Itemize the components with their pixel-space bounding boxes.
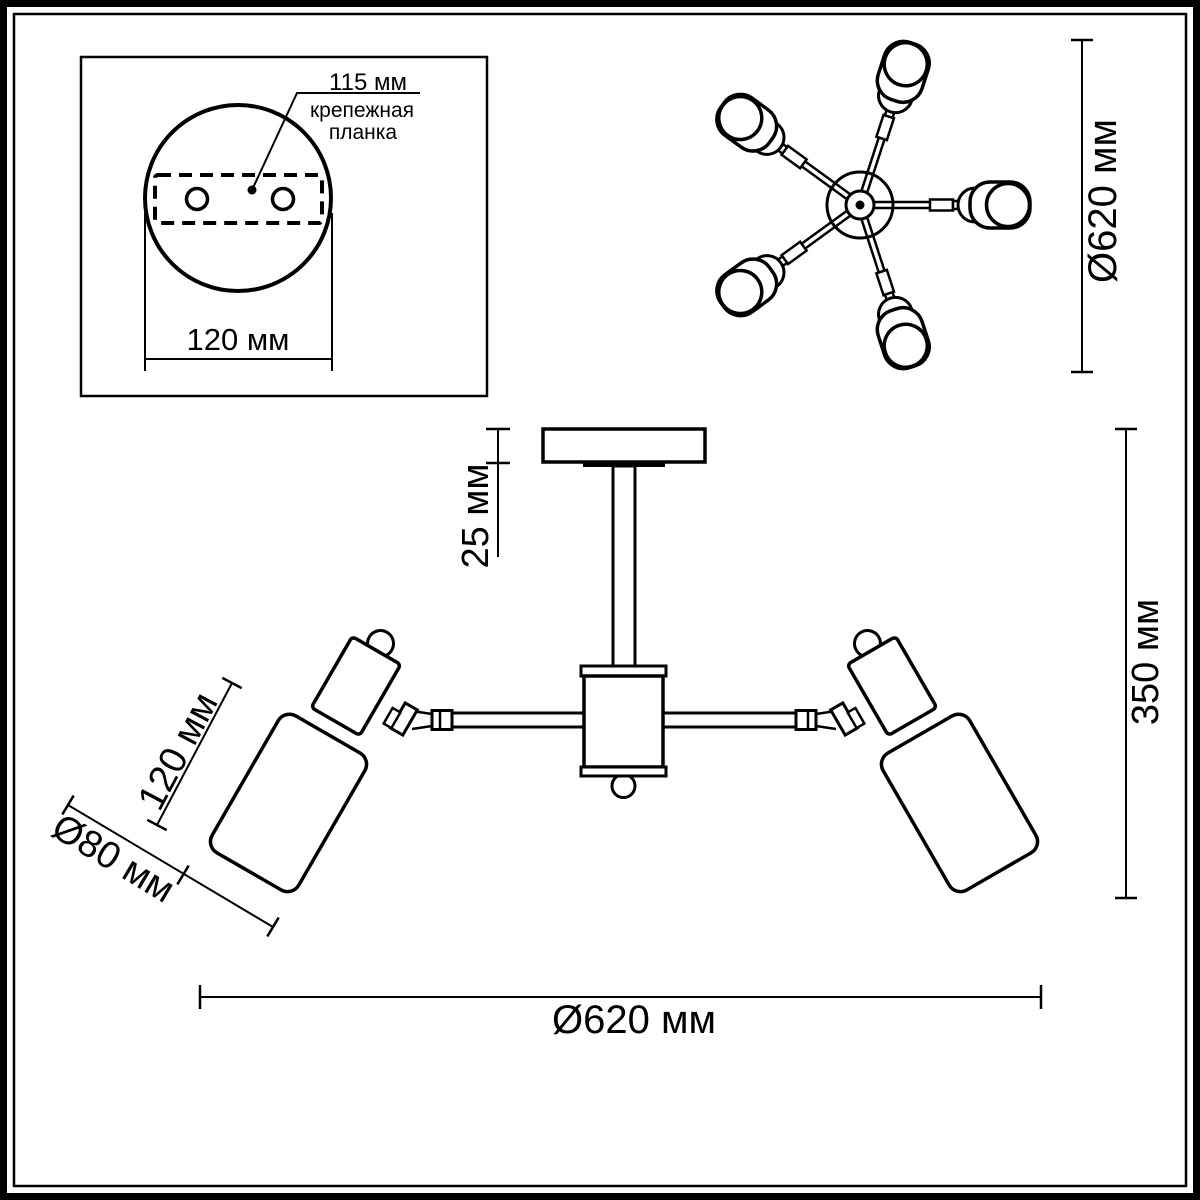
plate-name-line1: крепежная <box>310 99 414 122</box>
arm-collar <box>930 200 953 211</box>
left-arm-collar <box>432 711 452 730</box>
left-arm <box>450 713 585 727</box>
total-height-label: 350 мм <box>1125 599 1167 725</box>
total-width-label: Ø620 мм <box>552 998 716 1042</box>
technical-drawing-canvas: 115 мм крепежная планка 120 мм <box>0 0 1200 1200</box>
ceiling-canopy <box>543 429 705 462</box>
hole-spacing-label: 115 мм <box>329 69 407 96</box>
top-view-center-dot <box>856 201 865 210</box>
stem <box>613 466 635 668</box>
right-arm-collar <box>796 711 816 730</box>
lamp-shade-rim <box>987 184 1030 227</box>
canopy-height-label: 25 мм <box>455 463 497 568</box>
body-bottom-flange <box>581 767 666 776</box>
plate-width-label: 120 мм <box>187 322 290 357</box>
bottom-finial-ball <box>612 775 635 798</box>
right-arm <box>663 713 798 727</box>
central-body <box>584 676 663 767</box>
top-view-diameter-label: Ø620 мм <box>1081 119 1125 283</box>
drawing-page: 115 мм крепежная планка 120 мм <box>0 0 1200 1200</box>
plate-name-line2: планка <box>329 121 398 144</box>
